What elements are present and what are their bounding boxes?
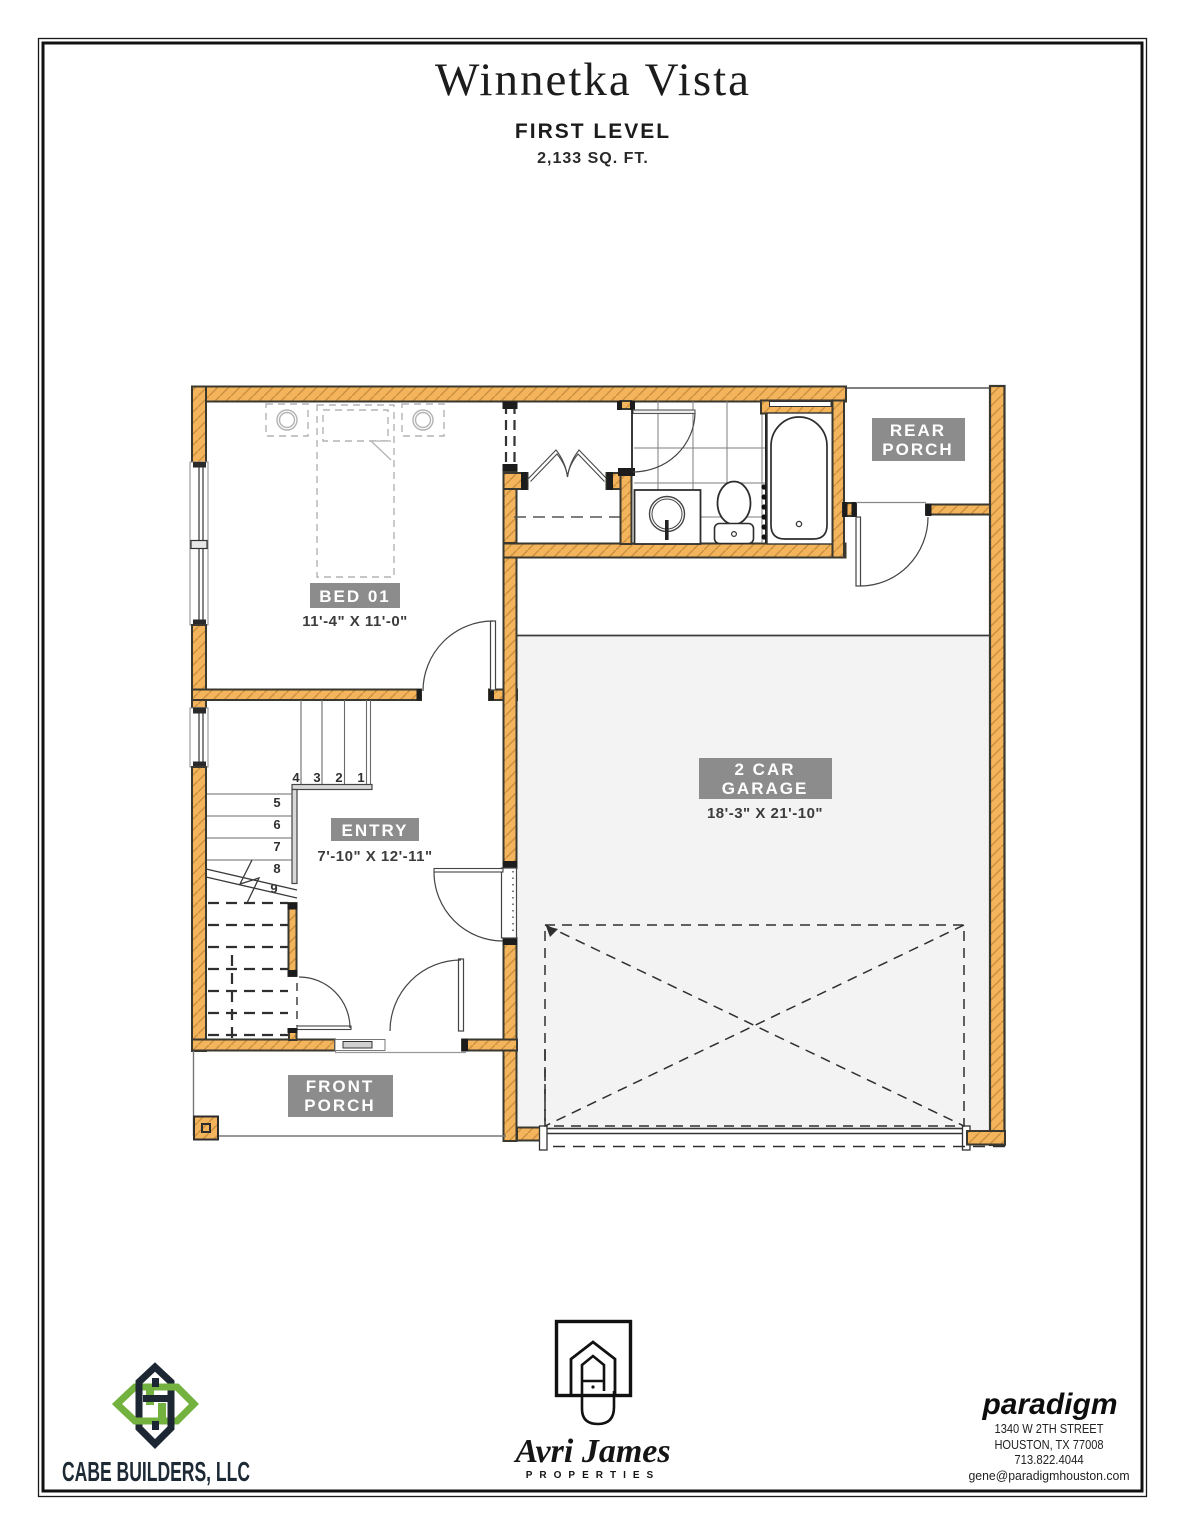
svg-text:FIRST LEVEL: FIRST LEVEL (515, 120, 671, 143)
svg-text:5: 5 (273, 795, 280, 810)
svg-text:2 CAR: 2 CAR (734, 760, 795, 779)
svg-text:paradigm: paradigm (981, 1388, 1117, 1421)
svg-text:HOUSTON, TX 77008: HOUSTON, TX 77008 (994, 1437, 1103, 1452)
svg-text:8: 8 (273, 861, 280, 876)
svg-text:Winnetka Vista: Winnetka Vista (435, 54, 751, 106)
svg-text:PORCH: PORCH (304, 1096, 375, 1115)
svg-text:PROPERTIES: PROPERTIES (526, 1470, 660, 1481)
svg-text:2,133 SQ. FT.: 2,133 SQ. FT. (537, 150, 649, 167)
svg-text:1: 1 (357, 770, 364, 785)
svg-text:Avri James: Avri James (513, 1433, 670, 1470)
svg-text:BED 01: BED 01 (319, 587, 391, 606)
svg-text:4: 4 (292, 770, 300, 785)
svg-text:ENTRY: ENTRY (342, 821, 409, 840)
svg-text:18'-3" X 21'-10": 18'-3" X 21'-10" (707, 805, 823, 822)
svg-text:6: 6 (273, 817, 280, 832)
svg-text:713.822.4044: 713.822.4044 (1014, 1452, 1084, 1467)
svg-text:1340 W 2TH STREET: 1340 W 2TH STREET (995, 1421, 1104, 1436)
svg-text:PORCH: PORCH (882, 440, 953, 459)
svg-text:11'-4" X 11'-0": 11'-4" X 11'-0" (302, 613, 408, 630)
svg-text:REAR: REAR (890, 421, 946, 440)
svg-text:3: 3 (313, 770, 320, 785)
svg-text:7'-10" X 12'-11": 7'-10" X 12'-11" (317, 848, 432, 865)
svg-text:7: 7 (273, 839, 280, 854)
svg-text:2: 2 (335, 770, 342, 785)
svg-text:CABE BUILDERS, LLC: CABE BUILDERS, LLC (62, 1456, 250, 1487)
svg-text:GARAGE: GARAGE (722, 779, 809, 798)
svg-text:FRONT: FRONT (306, 1077, 375, 1096)
svg-text:gene@paradigmhouston.com: gene@paradigmhouston.com (968, 1468, 1129, 1484)
